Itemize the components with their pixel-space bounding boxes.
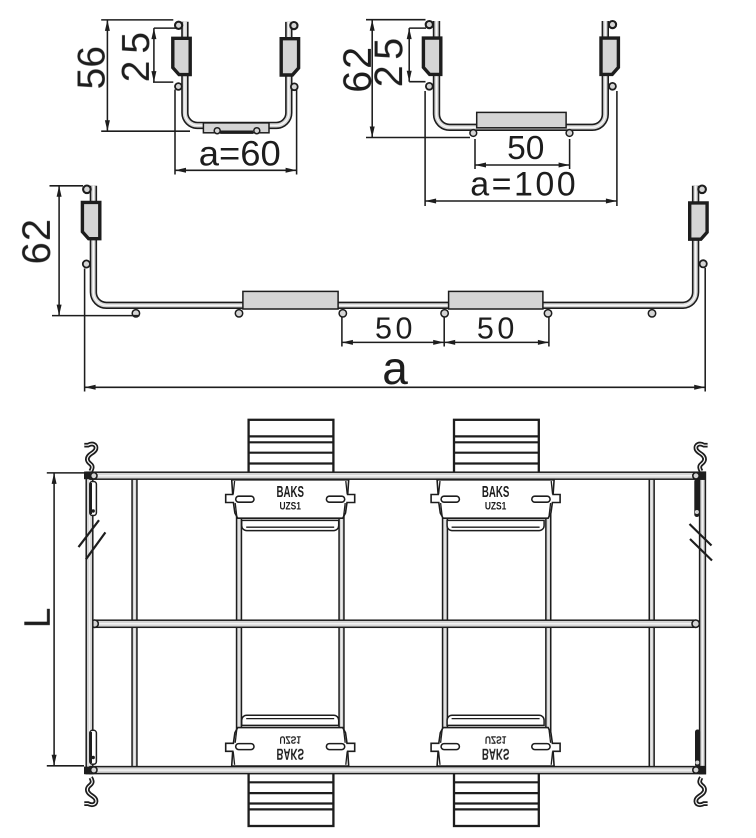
svg-text:UZS1: UZS1	[279, 733, 301, 745]
svg-text:a: a	[382, 342, 408, 394]
svg-text:56: 56	[71, 46, 114, 89]
svg-text:25: 25	[367, 32, 411, 87]
svg-text:50: 50	[507, 130, 544, 167]
svg-text:UZS1: UZS1	[485, 501, 507, 513]
svg-text:BAKS: BAKS	[482, 745, 510, 762]
svg-text:UZS1: UZS1	[279, 501, 301, 513]
svg-text:BAKS: BAKS	[276, 484, 304, 501]
svg-text:BAKS: BAKS	[276, 745, 304, 762]
svg-text:L: L	[17, 608, 58, 629]
svg-text:25: 25	[115, 25, 158, 82]
svg-text:UZS1: UZS1	[485, 733, 507, 745]
svg-text:62: 62	[15, 218, 59, 265]
svg-text:a=60: a=60	[199, 135, 281, 174]
svg-text:BAKS: BAKS	[482, 484, 510, 501]
svg-text:50: 50	[375, 311, 416, 345]
svg-text:50: 50	[477, 311, 518, 345]
svg-text:a=100: a=100	[470, 166, 578, 204]
